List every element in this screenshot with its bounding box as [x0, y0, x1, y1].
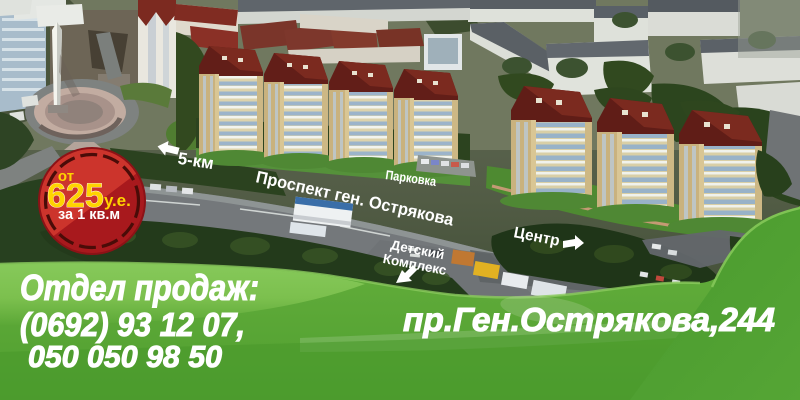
svg-text:за 1 кв.м: за 1 кв.м	[58, 207, 120, 223]
svg-text:(0692) 93 12 07,: (0692) 93 12 07,	[20, 306, 245, 343]
svg-text:Отдел продаж:: Отдел продаж:	[20, 267, 259, 308]
svg-text:пр.Ген.Острякова,244: пр.Ген.Острякова,244	[403, 301, 775, 338]
svg-text:050 050 98 50: 050 050 98 50	[28, 339, 222, 374]
